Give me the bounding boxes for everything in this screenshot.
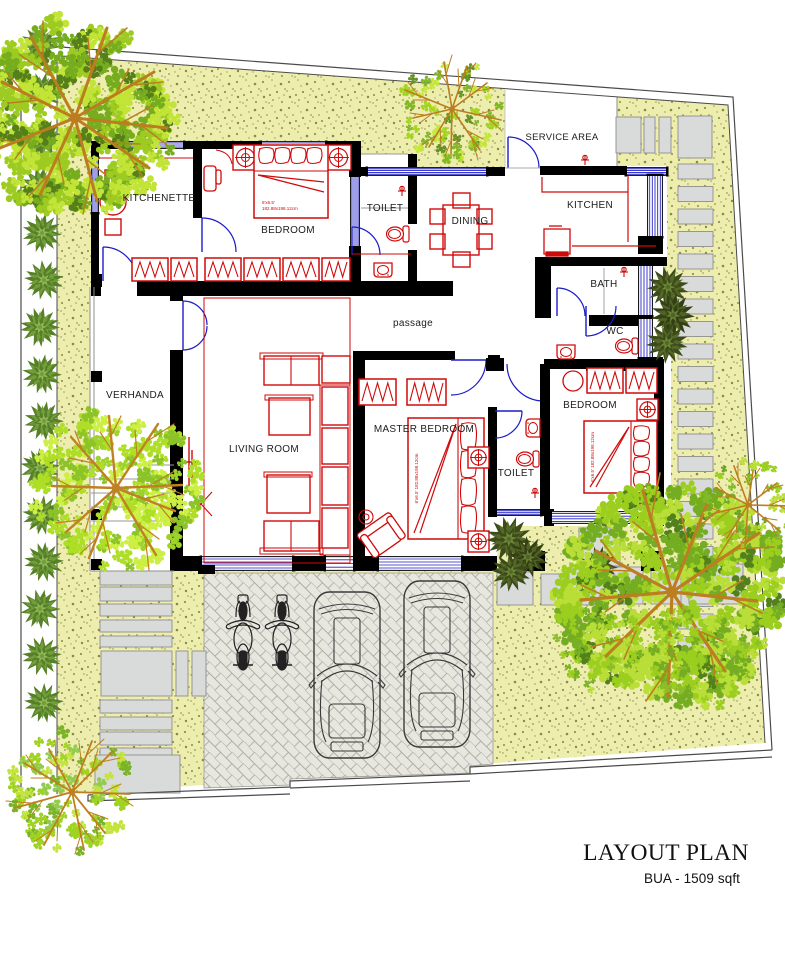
svg-text:TOILET: TOILET [367, 203, 404, 214]
svg-text:BEDROOM: BEDROOM [261, 225, 315, 236]
svg-text:6'x6.5': 6'x6.5' [262, 200, 275, 205]
svg-text:LAYOUT PLAN: LAYOUT PLAN [583, 840, 749, 866]
svg-text:SERVICE AREA: SERVICE AREA [525, 132, 598, 143]
svg-text:BUA - 1509 sqft: BUA - 1509 sqft [644, 871, 740, 886]
svg-text:MASTER BEDROOM: MASTER BEDROOM [374, 424, 474, 435]
svg-text:VERHANDA: VERHANDA [106, 390, 164, 401]
svg-text:182.88x198.12cm: 182.88x198.12cm [262, 206, 298, 211]
svg-text:passage: passage [393, 318, 433, 329]
svg-text:6'x6.5' 182.88x198.12cm: 6'x6.5' 182.88x198.12cm [414, 453, 419, 503]
svg-text:6'x6.5' 182.88x198.12cm: 6'x6.5' 182.88x198.12cm [590, 432, 595, 482]
svg-text:BEDROOM: BEDROOM [563, 400, 617, 411]
svg-text:KITCHENETTE: KITCHENETTE [123, 193, 196, 204]
svg-text:TOILET: TOILET [498, 468, 535, 479]
svg-text:DINING: DINING [452, 216, 489, 227]
svg-text:WC: WC [606, 326, 623, 337]
svg-text:KITCHEN: KITCHEN [567, 200, 613, 211]
svg-text:BATH: BATH [590, 279, 617, 290]
svg-text:LIVING ROOM: LIVING ROOM [229, 444, 299, 455]
